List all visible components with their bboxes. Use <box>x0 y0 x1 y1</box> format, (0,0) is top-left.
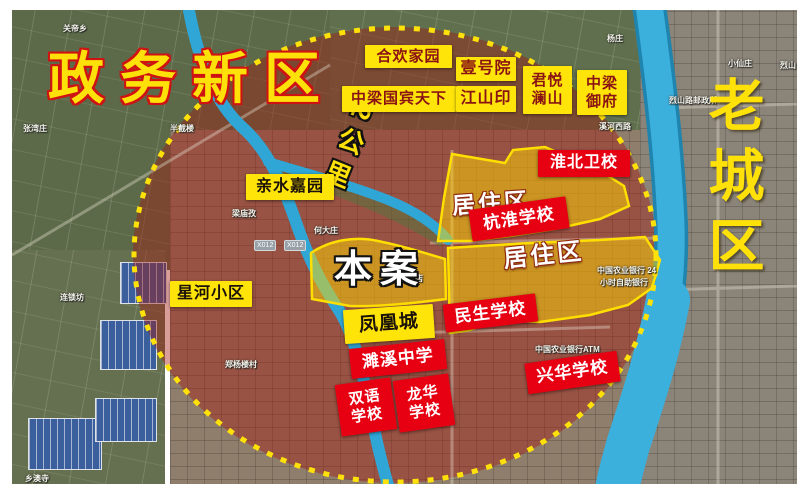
map-poi-label: 烈山 <box>780 60 796 71</box>
label-line: 御府 <box>586 93 618 111</box>
community-label-zhongliangyufu: 中梁 御府 <box>577 70 627 115</box>
district-title-right: 老城区 <box>692 76 773 326</box>
community-label-yihaoyuan: 壹号院 <box>456 57 516 81</box>
community-label-hehuanjiayuan: 合欢家园 <box>365 45 452 68</box>
map-poi-label: 中国农业银行 24 <box>597 265 656 276</box>
school-label-shuangyuxuexiao: 双语 学校 <box>335 377 398 436</box>
map-poi-label: 溪河西路 <box>599 121 631 132</box>
label-line: 中梁 <box>586 75 618 93</box>
label-line: 君悦 <box>531 72 563 90</box>
community-label-qinshuijiayuan: 亲水嘉园 <box>246 174 334 200</box>
community-label-xinghexiaoqu: 星河小区 <box>170 281 252 307</box>
map-poi-label: 连锁坊 <box>60 292 84 303</box>
map-poi-label: 半截楼 <box>170 123 194 134</box>
map-poi-label: 小时自助银行 <box>600 277 648 288</box>
frame-top <box>0 0 809 10</box>
map-poi-label: 乡澳寺 <box>25 473 49 484</box>
frame-right <box>797 0 809 493</box>
road-number-chip: X012 <box>254 240 276 251</box>
map-poi-label: 梁庙孜 <box>232 208 256 219</box>
community-label-junyuelanshan: 君悦 澜山 <box>523 66 572 114</box>
school-label-huaibeiweixiao: 淮北卫校 <box>538 150 630 177</box>
district-title-left: 政务新区 <box>48 34 336 115</box>
map-poi-label: 小仙庄 <box>728 58 752 69</box>
label-line: 学校 <box>350 405 384 427</box>
label-line: 学校 <box>408 401 442 423</box>
frame-left <box>0 0 12 493</box>
map-poi-label: 杨庄 <box>607 33 623 44</box>
school-label-longhuaxuexiao: 龙华 学校 <box>393 373 456 432</box>
community-label-fenghuangcheng: 凤凰城 <box>343 304 435 344</box>
community-label-jiangshanyin: 江山印 <box>456 86 516 112</box>
community-label-zhongliangguobintianxia: 中梁国宾天下 <box>342 86 456 112</box>
label-line: 澜山 <box>531 90 563 108</box>
map-poi-label: 关帝乡 <box>63 23 87 34</box>
map-poi-label: 张湾庄 <box>23 123 47 134</box>
road-number-chip: X012 <box>284 240 306 251</box>
site-label: 本案 <box>334 238 426 293</box>
frame-bottom <box>0 484 809 493</box>
map-poi-label: 郑杨楼村 <box>225 359 257 370</box>
location-map: 关帝乡张湾庄半截楼梁庙孜何大庄连锁坊郑杨楼村鑫源饭店中国农业银行 24小时自助银… <box>0 0 809 493</box>
map-poi-label: 何大庄 <box>314 225 338 236</box>
